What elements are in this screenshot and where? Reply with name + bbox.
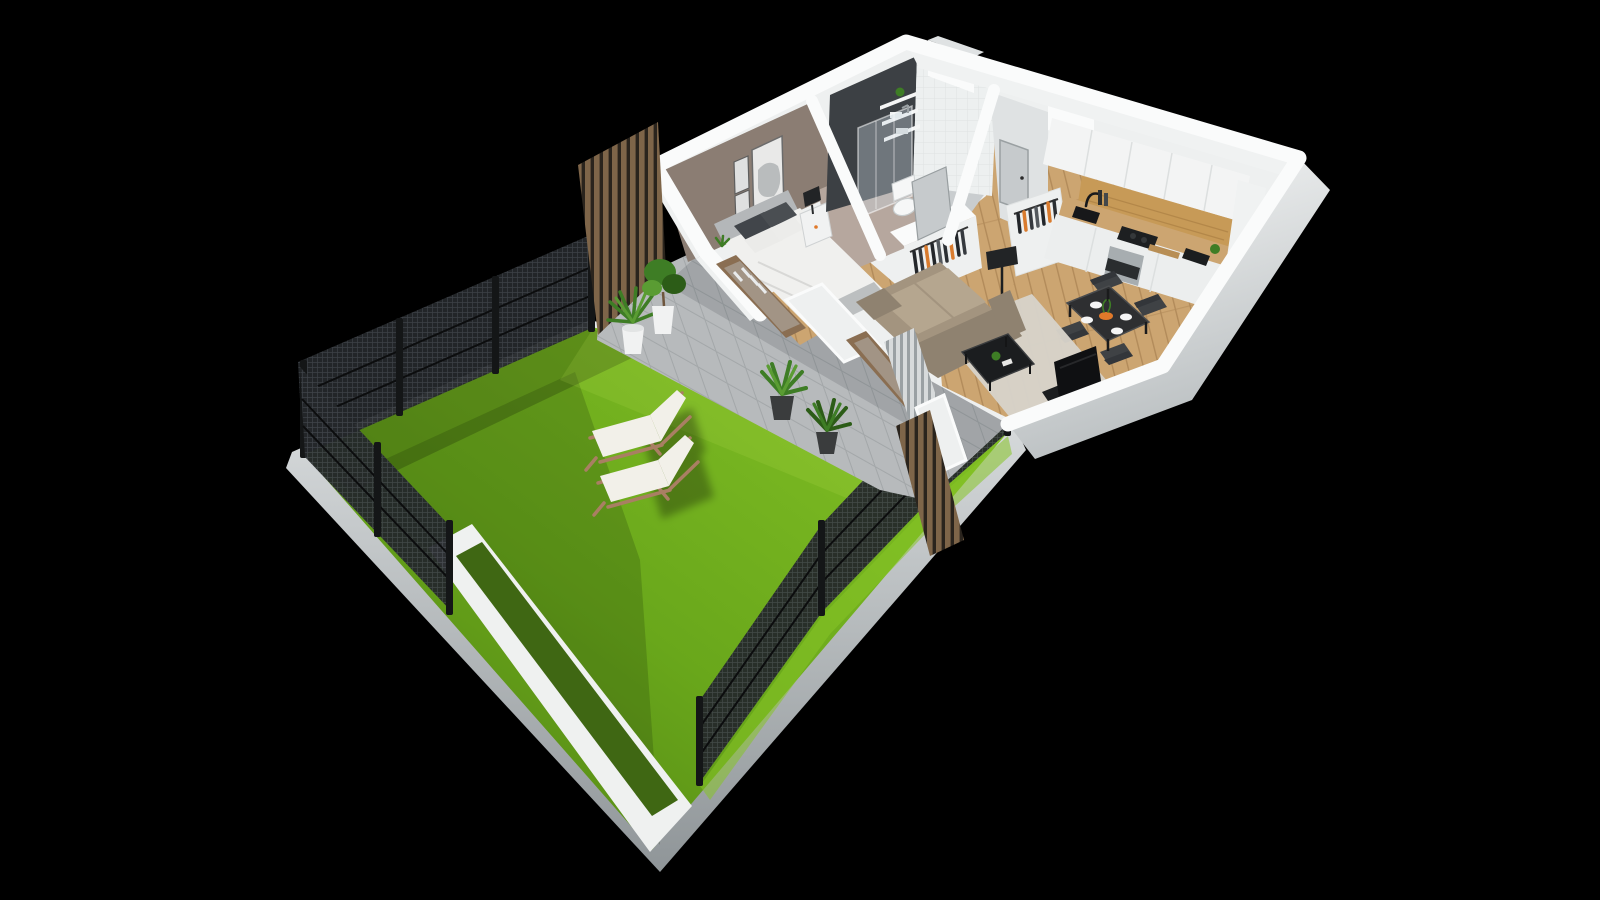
plant-pot-white: [652, 306, 674, 334]
counter-plant: [1210, 244, 1220, 254]
tree-trunk: [663, 292, 664, 306]
entry-door-handle: [1020, 176, 1024, 180]
counter-bottle: [1104, 193, 1108, 206]
floor-plan-render: 3D Apartment Floor Plan: [0, 0, 1600, 900]
table-lamp-stem: [812, 205, 813, 214]
wall-art-small: [734, 156, 749, 194]
plate: [1120, 314, 1132, 321]
plant-pot-rim: [622, 324, 644, 332]
plate: [1090, 302, 1102, 309]
fence-post: [396, 318, 403, 416]
nightstand-knob: [814, 225, 818, 229]
fruit-bowl: [1099, 312, 1113, 320]
fence-post: [446, 520, 453, 615]
cooktop-burner: [1130, 233, 1136, 239]
tree-canopy: [642, 280, 662, 296]
fence-post: [696, 696, 703, 786]
shelf-plant: [896, 88, 905, 97]
fence-post: [818, 520, 825, 616]
plant-pot-dark: [770, 396, 794, 420]
tree-canopy: [662, 274, 686, 294]
cooktop-burner: [1141, 237, 1147, 243]
plate: [1111, 328, 1123, 335]
fence-post: [492, 276, 499, 374]
counter-bottle: [1098, 190, 1102, 205]
render-canvas: 3D Apartment Floor Plan: [0, 0, 1600, 900]
fence-post: [374, 442, 381, 537]
plate: [1081, 317, 1093, 324]
coffee-table-plant: [992, 352, 1001, 361]
